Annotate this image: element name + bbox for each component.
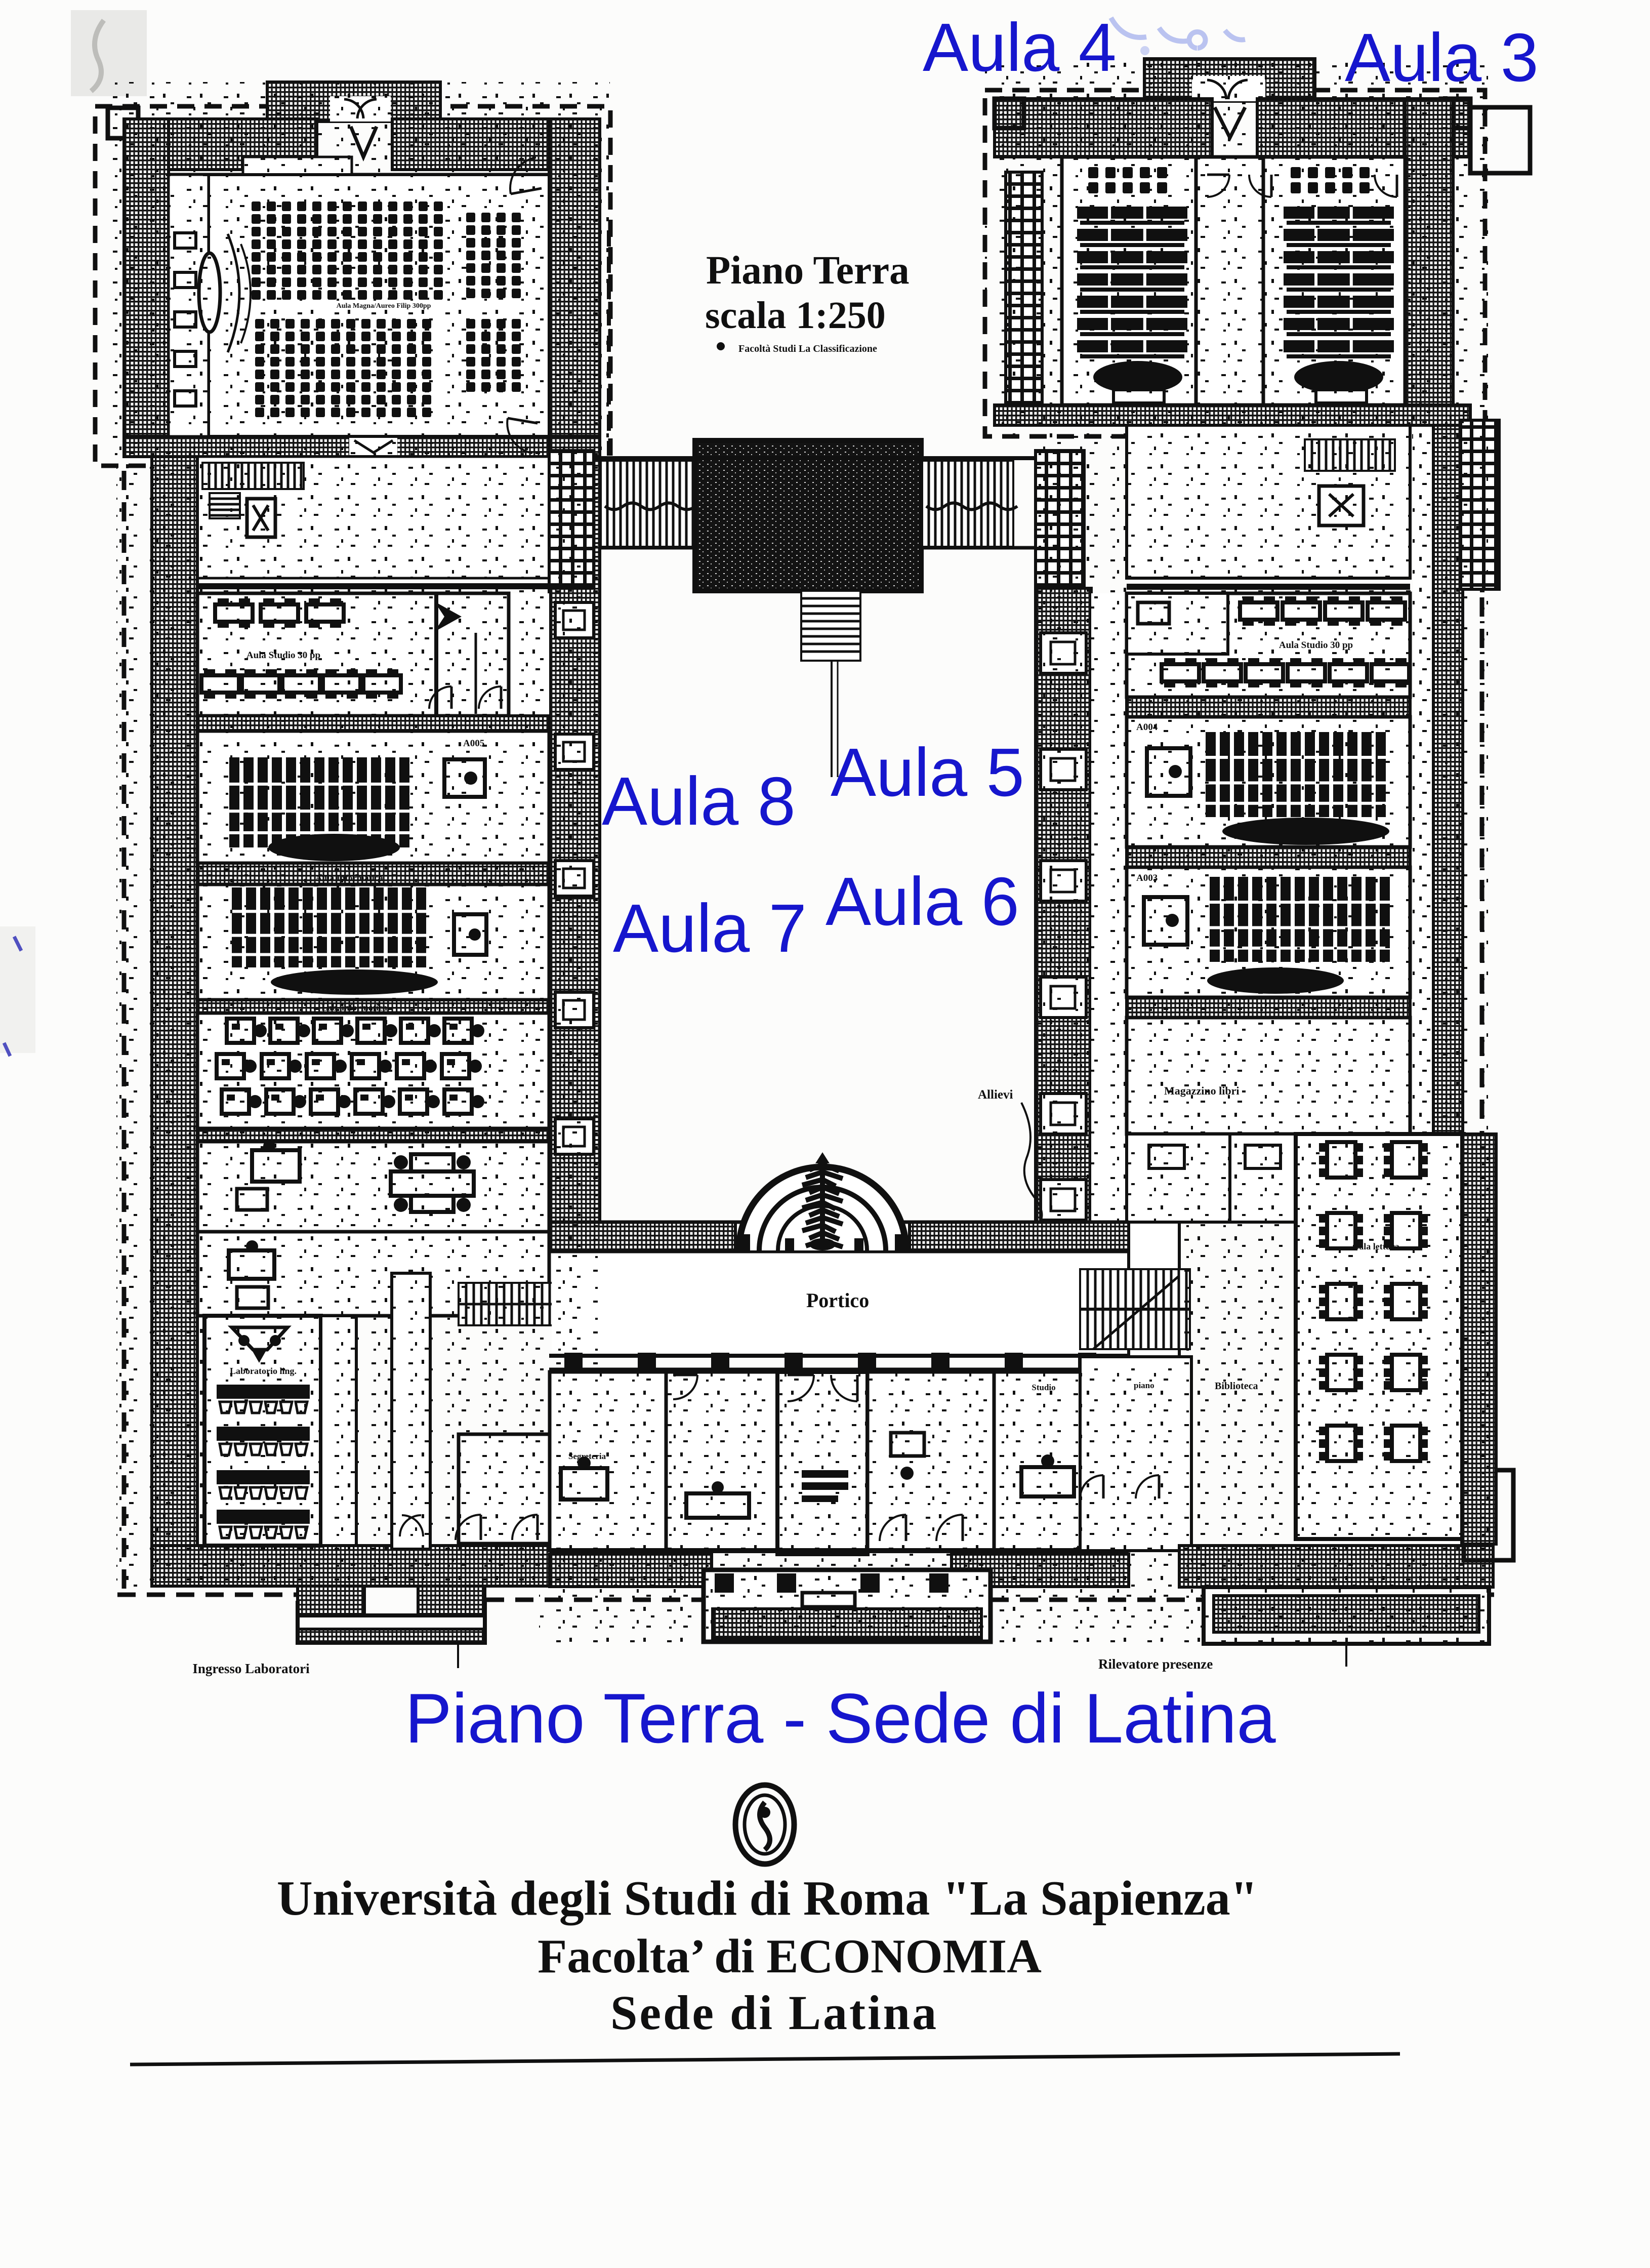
svg-text:Rilevatore presenze: Rilevatore presenze — [1098, 1656, 1213, 1672]
svg-text:Piano Terra - Sede di Latina: Piano Terra - Sede di Latina — [405, 1679, 1276, 1758]
svg-text:Ingresso Laboratori: Ingresso Laboratori — [192, 1661, 310, 1676]
svg-text:Portico: Portico — [806, 1289, 869, 1312]
svg-text:Aula 8: Aula 8 — [602, 763, 796, 839]
svg-text:scala 1:250: scala 1:250 — [705, 294, 886, 337]
svg-text:Aula 6: Aula 6 — [826, 863, 1019, 940]
svg-text:Allievi: Allievi — [978, 1088, 1013, 1102]
svg-text:Sede di Latina: Sede di Latina — [610, 1986, 938, 2040]
svg-text:Aula 3: Aula 3 — [1345, 19, 1539, 96]
svg-text:Aula 5: Aula 5 — [831, 734, 1024, 811]
svg-text:Università degli Studi di Roma: Università degli Studi di Roma "La Sapie… — [277, 1871, 1258, 1926]
svg-text:Aula 7: Aula 7 — [613, 890, 807, 966]
svg-text:Facoltà Studi La Classifica: Facoltà Studi La Classificazione — [738, 343, 877, 354]
svg-text:Aula 4: Aula 4 — [923, 9, 1117, 86]
svg-text:Piano Terra: Piano Terra — [706, 249, 910, 293]
svg-text:Facolta’ di ECONOMIA: Facolta’ di ECONOMIA — [538, 1929, 1042, 1983]
